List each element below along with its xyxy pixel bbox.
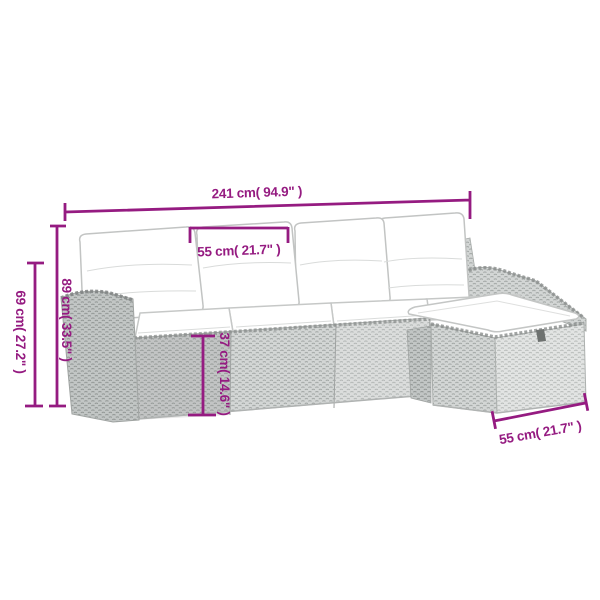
back-pillow-4 [379, 213, 470, 307]
dim-arm-height-label: 69 cm( 27.2" ) [13, 290, 28, 373]
ottoman [407, 293, 586, 413]
dim-back-height-label: 89 cm( 33.5" ) [59, 278, 74, 361]
diagram-canvas: 241 cm( 94.9" ) 55 cm( 21.7" ) 89 cm( 33… [0, 0, 600, 600]
ottoman-left-face [431, 324, 497, 413]
sofa-illustration [61, 213, 586, 422]
dim-overall-width-label: 241 cm( 94.9" ) [211, 184, 302, 202]
dim-base-height-label: 37 cm( 14.6" ) [217, 332, 232, 415]
base-right-sliver [407, 326, 431, 403]
dim-seat-width-label: 55 cm( 21.7" ) [197, 242, 281, 260]
dim-ottoman-depth-label: 55 cm( 21.7" ) [498, 418, 583, 447]
product-dimension-diagram: 241 cm( 94.9" ) 55 cm( 21.7" ) 89 cm( 33… [0, 0, 600, 600]
